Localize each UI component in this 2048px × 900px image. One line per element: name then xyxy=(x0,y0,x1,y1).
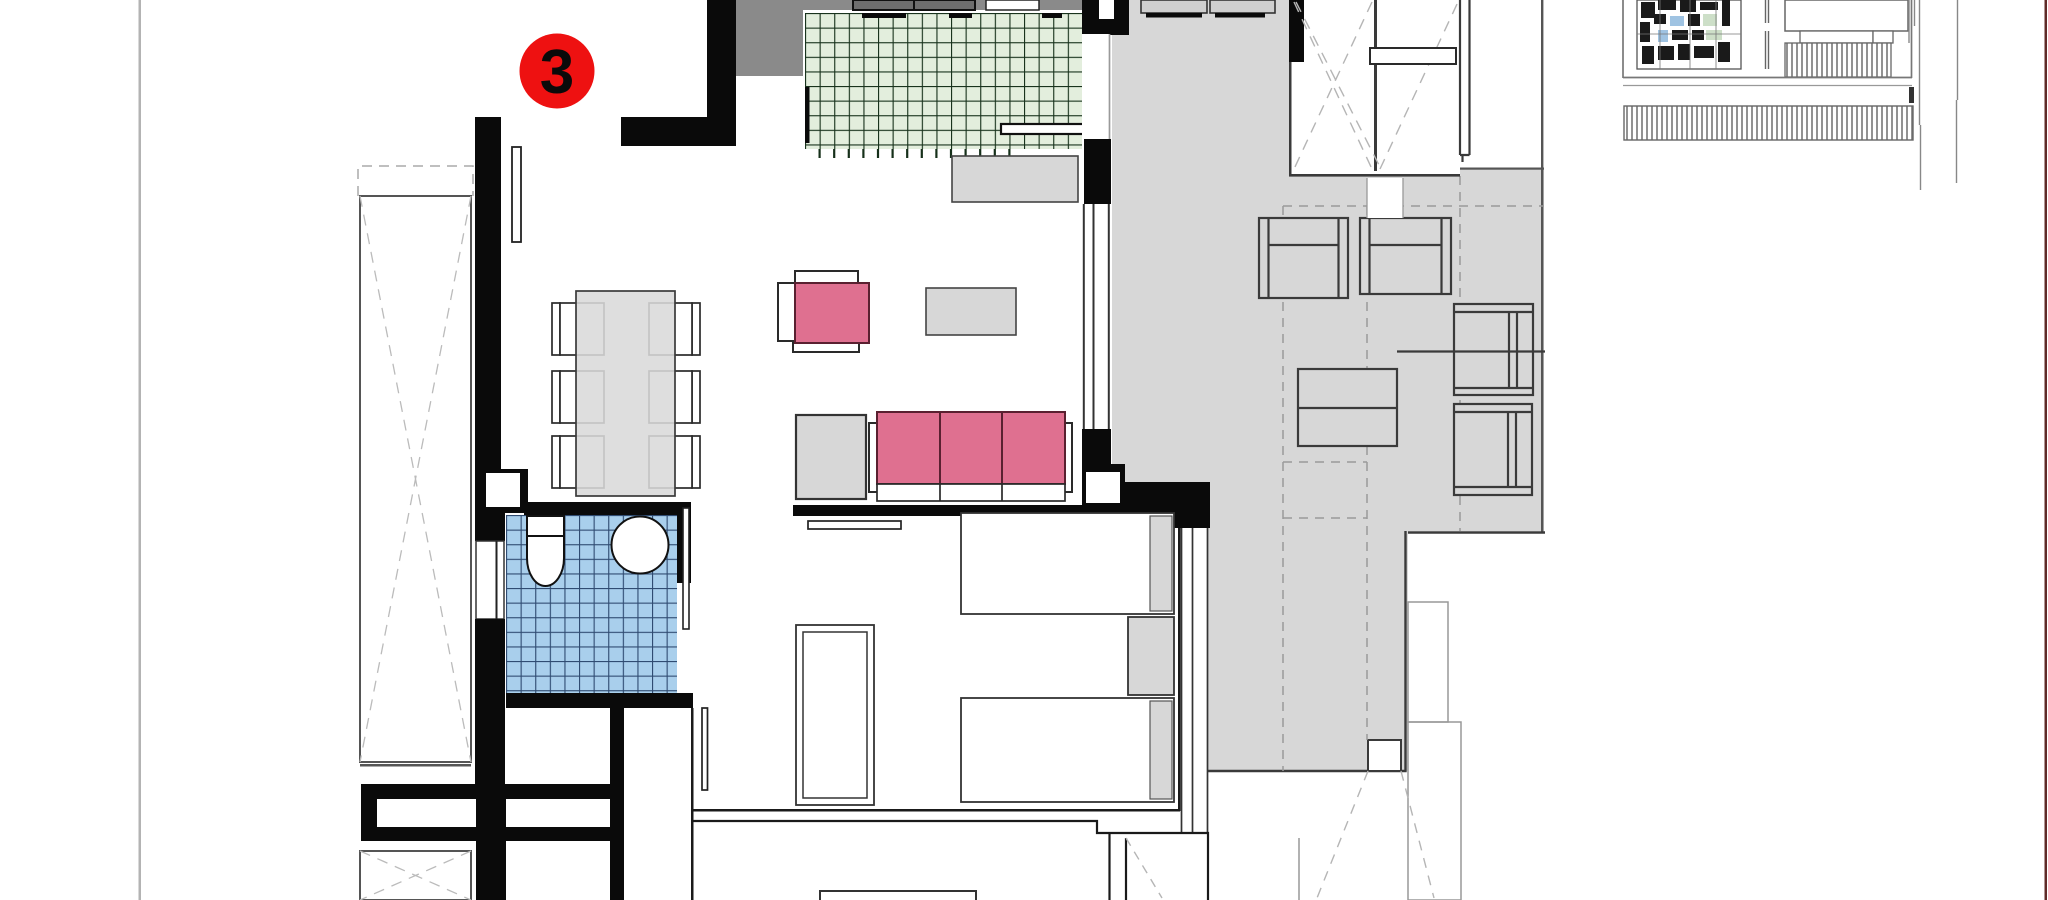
svg-text:3: 3 xyxy=(540,38,574,107)
